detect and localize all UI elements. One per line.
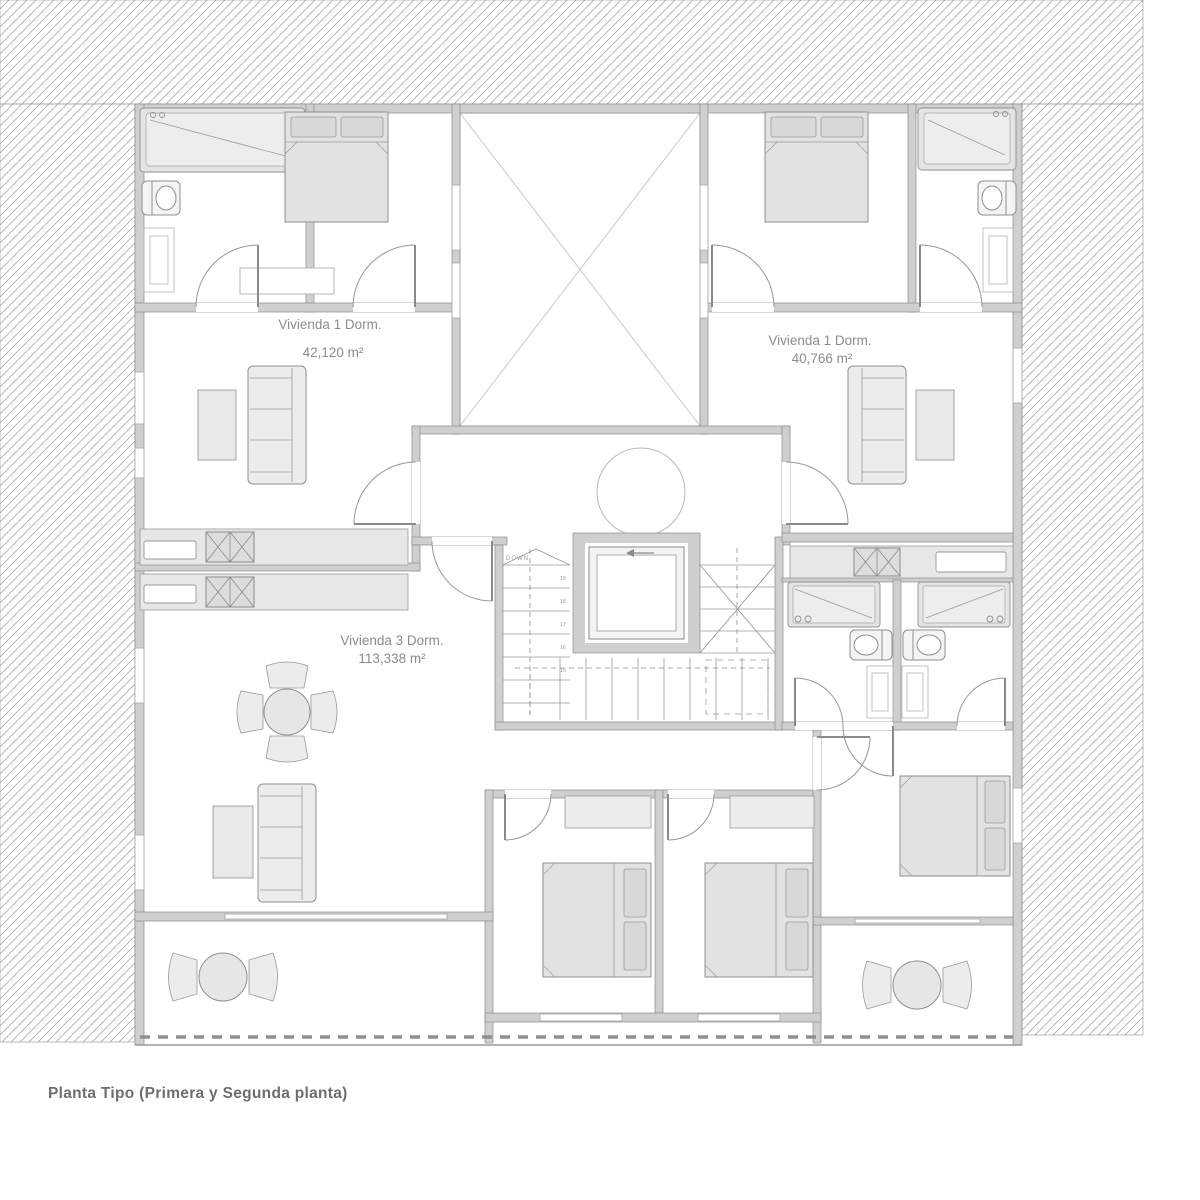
terrace-sw (169, 953, 278, 1001)
terrace-se (863, 961, 972, 1009)
sink (936, 552, 1006, 572)
window (698, 1014, 780, 1021)
double-bed (900, 776, 1010, 876)
window (135, 372, 144, 424)
double-bed (543, 863, 651, 977)
dining-chair (237, 691, 263, 733)
coffee-table (213, 806, 253, 878)
pillow (771, 117, 816, 137)
window (1013, 788, 1022, 843)
terrace-window (855, 919, 980, 923)
pillow (786, 922, 808, 970)
coffee-table (916, 390, 954, 460)
pillow (985, 828, 1005, 870)
tread-number: 15 (560, 668, 566, 674)
coffee-table (198, 390, 236, 460)
unit-c-area: 113,338 m² (358, 651, 426, 666)
toilet (978, 181, 1016, 215)
sofa (848, 366, 906, 484)
terrace-table (893, 961, 941, 1009)
stove-icon (206, 577, 254, 607)
double-bed (765, 112, 868, 222)
unit-c-bedroom-3 (900, 776, 1010, 876)
toilet (903, 630, 945, 660)
dresser (240, 268, 334, 294)
lightwell-window (700, 263, 708, 318)
pillow (624, 869, 646, 917)
terrace-chair (169, 953, 198, 1001)
pillow (341, 117, 383, 137)
bathtub (140, 108, 305, 172)
closet (565, 796, 651, 828)
window (135, 835, 144, 890)
lightwell-window (452, 263, 460, 318)
hatch-band-left (0, 104, 135, 1042)
pillow (291, 117, 336, 137)
dining-chair (311, 691, 337, 733)
tread-number: 18 (560, 599, 566, 605)
unit-a-area: 42,120 m² (303, 345, 364, 360)
hatch-band-right (1022, 104, 1143, 1035)
double-bed (705, 863, 813, 977)
sofa (258, 784, 316, 902)
floor-plan-page: DOWN 19 18 17 16 15 (0, 0, 1200, 1200)
terrace-table (199, 953, 247, 1001)
lightwell-window (452, 185, 460, 250)
dining-table (264, 689, 310, 735)
sink (144, 541, 196, 559)
terrace-chair (943, 961, 972, 1009)
stove-icon (854, 548, 900, 576)
unit-c-label: Vivienda 3 Dorm. (340, 633, 443, 648)
window (540, 1014, 622, 1021)
sofa (248, 366, 306, 484)
lightwell (460, 113, 700, 426)
hall-round-table (597, 448, 685, 536)
dining-chair (266, 662, 308, 688)
unit-b-bedroom (765, 112, 868, 222)
pillow (786, 869, 808, 917)
shower (918, 582, 1010, 627)
stove-icon (206, 532, 254, 562)
unit-b-label: Vivienda 1 Dorm. (768, 333, 871, 348)
tread-number: 16 (560, 645, 566, 651)
pillow (624, 922, 646, 970)
hatch-band-top (0, 0, 1143, 104)
pillow (821, 117, 863, 137)
tread-number: 17 (560, 622, 566, 628)
lightwell-window (700, 185, 708, 250)
dining-chair (266, 736, 308, 762)
stairs-down-label: DOWN (506, 556, 529, 562)
plan-caption: Planta Tipo (Primera y Segunda planta) (48, 1085, 348, 1102)
tread-number: 19 (560, 576, 566, 582)
floor-plan-canvas: DOWN 19 18 17 16 15 (0, 0, 1200, 1200)
window (135, 648, 144, 703)
toilet (142, 181, 180, 215)
window (135, 448, 144, 478)
window (1013, 348, 1022, 403)
shower (788, 582, 880, 627)
terrace-chair (863, 961, 892, 1009)
unit-b-area: 40,766 m² (792, 351, 853, 366)
terrace-chair (249, 953, 278, 1001)
terrace-window (225, 914, 447, 919)
unit-c-kitchen (140, 574, 408, 610)
shower (918, 108, 1016, 170)
toilet (850, 630, 892, 660)
double-bed (285, 112, 388, 222)
pillow (985, 781, 1005, 823)
sink (144, 585, 196, 603)
unit-a-kitchen (140, 529, 408, 565)
unit-a-label: Vivienda 1 Dorm. (278, 317, 381, 332)
elevator (573, 533, 700, 653)
unit-b-kitchen (790, 546, 1013, 578)
closet (730, 796, 814, 828)
